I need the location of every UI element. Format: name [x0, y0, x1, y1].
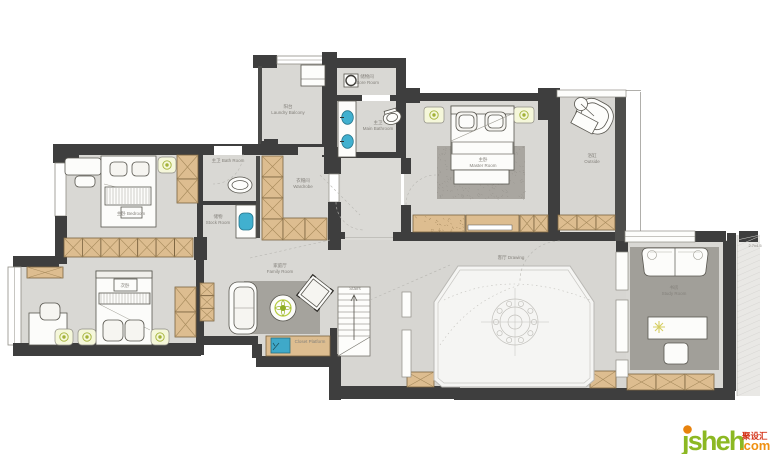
svg-text:Closet Platform: Closet Platform	[295, 339, 326, 344]
svg-text:主卫: 主卫	[374, 119, 383, 125]
svg-text:Main Bathroom: Main Bathroom	[363, 126, 394, 131]
svg-text:.com: .com	[740, 438, 770, 453]
svg-text:主卫 Bath Room: 主卫 Bath Room	[212, 157, 245, 163]
svg-text:Wardrobe: Wardrobe	[293, 184, 313, 189]
svg-text:Store Room: Store Room	[355, 80, 379, 85]
svg-text:Stairs: Stairs	[349, 286, 361, 291]
svg-text:阳台: 阳台	[284, 103, 293, 110]
svg-text:书房: 书房	[670, 284, 679, 291]
svg-text:衣帽间: 衣帽间	[296, 177, 310, 184]
svg-text:Stock Room: Stock Room	[206, 220, 231, 225]
svg-text:储物间: 储物间	[360, 73, 374, 80]
svg-text:Outside: Outside	[584, 159, 600, 164]
svg-text:浴缸: 浴缸	[588, 152, 597, 159]
svg-text:主卧 Bedroom: 主卧 Bedroom	[117, 210, 146, 217]
svg-text:Laundry Balcony: Laundry Balcony	[271, 110, 305, 115]
svg-text:Study Room: Study Room	[662, 291, 687, 296]
svg-text:主卧: 主卧	[479, 156, 488, 163]
svg-text:家庭厅: 家庭厅	[273, 262, 287, 269]
svg-text:Master Room: Master Room	[469, 163, 496, 168]
svg-text:Family Room: Family Room	[267, 269, 294, 274]
svg-text:客厅 Drawing: 客厅 Drawing	[498, 254, 525, 261]
svg-text:次卧: 次卧	[121, 282, 130, 289]
svg-text:储物: 储物	[214, 213, 223, 220]
svg-text:2.7x4.5: 2.7x4.5	[748, 243, 762, 248]
